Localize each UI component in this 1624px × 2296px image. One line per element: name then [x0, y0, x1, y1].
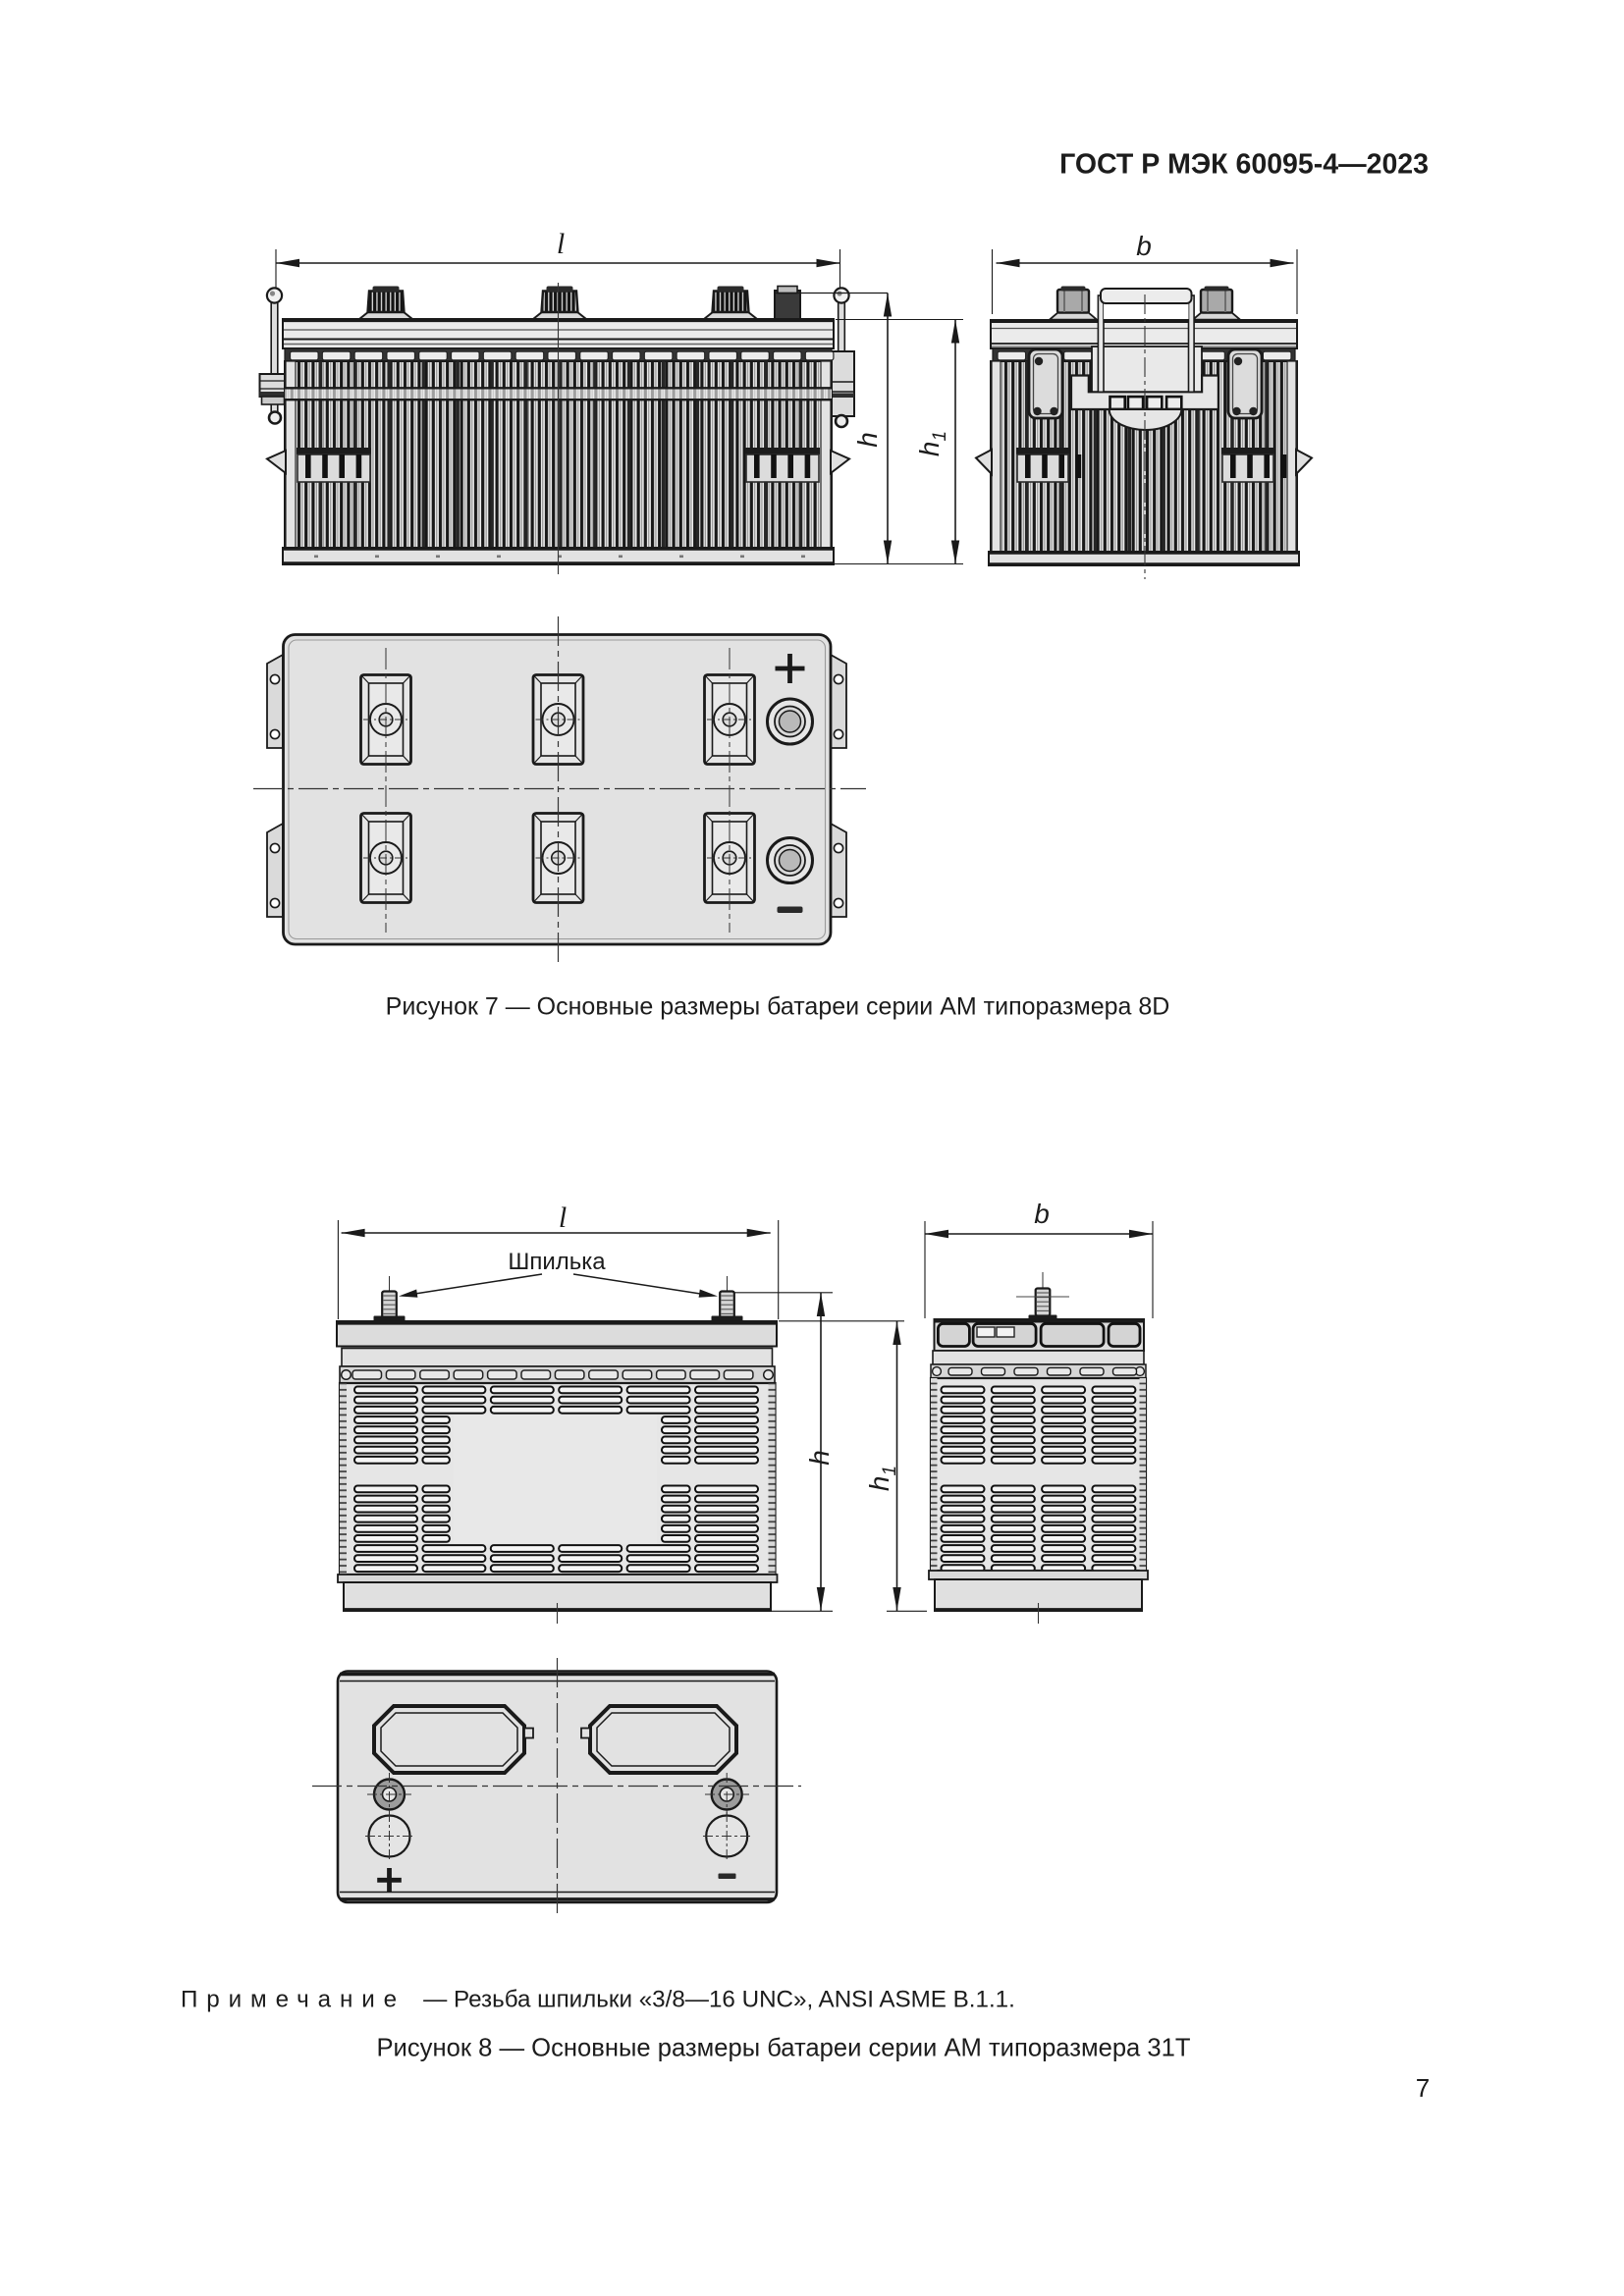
svg-text:Рисунок 7 — Основные размеры б: Рисунок 7 — Основные размеры батареи сер… — [386, 993, 1170, 1021]
svg-text:b: b — [1034, 1199, 1050, 1229]
svg-text:h1: h1 — [864, 1466, 900, 1491]
svg-text:7: 7 — [1416, 2073, 1430, 2103]
svg-text:l: l — [557, 228, 565, 260]
svg-text:h1: h1 — [914, 431, 950, 456]
svg-text:ГОСТ Р МЭК 60095-4—2023: ГОСТ Р МЭК 60095-4—2023 — [1059, 149, 1429, 181]
svg-text:h: h — [852, 432, 883, 448]
svg-text:h: h — [804, 1450, 835, 1466]
svg-text:Шпилька: Шпилька — [508, 1249, 606, 1275]
svg-text:b: b — [1136, 231, 1152, 261]
svg-text:Рисунок 8 — Основные размеры б: Рисунок 8 — Основные размеры батареи сер… — [376, 2034, 1190, 2061]
svg-text:l: l — [559, 1201, 567, 1234]
svg-text:Примечание— Резьба шпильки «3/: Примечание— Резьба шпильки «3/8—16 UNC»,… — [181, 1987, 1015, 2013]
